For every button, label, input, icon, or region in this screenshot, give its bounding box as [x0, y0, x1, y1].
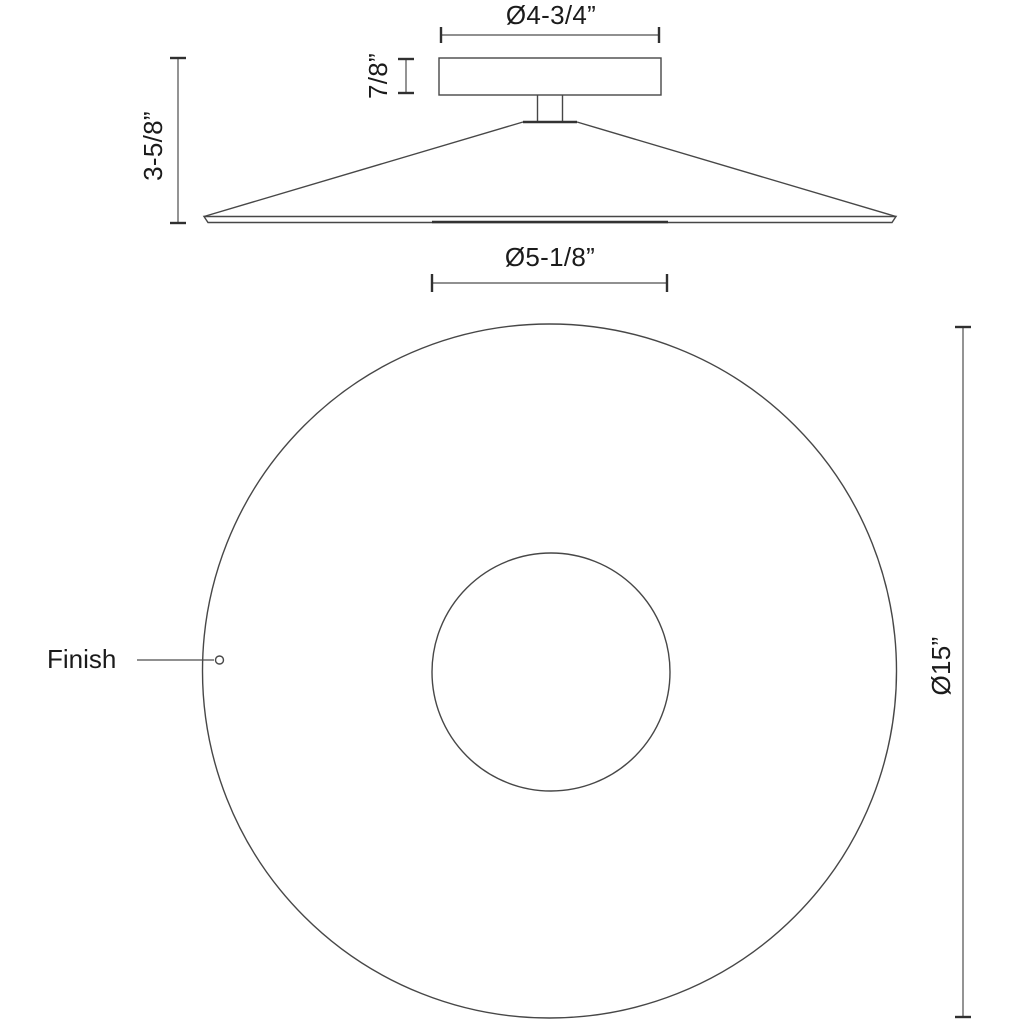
technical-drawing: Ø4-3/4” 7/8” 3-5/8” Ø5-1/8” Ø15” Finish: [0, 0, 1024, 1024]
finish-label: Finish: [47, 646, 116, 672]
shade-right-slope: [577, 122, 896, 217]
finish-leader-dot: [216, 656, 224, 664]
canopy-diameter-label: Ø4-3/4”: [506, 2, 596, 28]
outer-diameter-label: Ø15”: [928, 636, 954, 695]
side-view: [204, 58, 896, 223]
plan-view: [137, 324, 897, 1018]
shade-left-slope: [204, 122, 523, 217]
inner-diameter-label: Ø5-1/8”: [505, 244, 595, 270]
dimension-lines-plan: [955, 327, 971, 1017]
outer-circle: [203, 324, 897, 1018]
fixture-height-label: 3-5/8”: [140, 111, 166, 181]
inner-circle: [432, 553, 670, 791]
canopy-height-label: 7/8”: [365, 53, 391, 99]
canopy-outline: [439, 58, 661, 95]
